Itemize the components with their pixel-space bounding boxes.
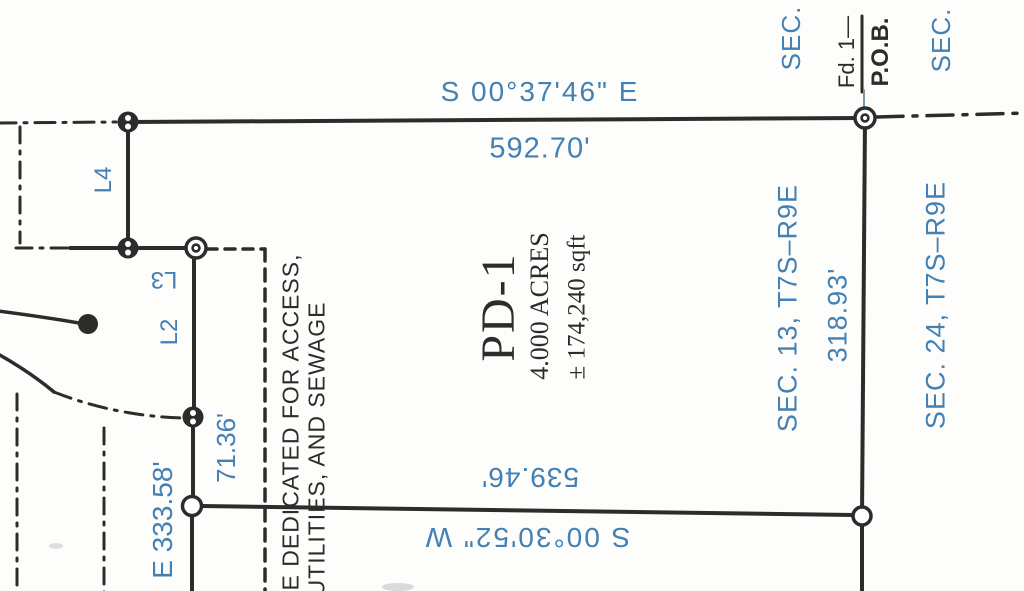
parcel-sqft-label: ± 174,240 sqft	[565, 235, 590, 380]
north-distance-label: 592.70'	[489, 135, 590, 164]
seg-7136-label: 71.36'	[213, 413, 239, 483]
sec-top-left-label: SEC.	[778, 6, 804, 71]
sec-13-label: SEC. 13, T7S–R9E	[775, 184, 802, 432]
sec-top-right-label: SEC.	[928, 8, 954, 73]
section-line-west-ext	[0, 122, 116, 123]
north-boundary-line	[128, 118, 863, 122]
sec-24-label: SEC. 24, T7S–R9E	[923, 181, 950, 429]
monument-west-mid	[183, 407, 204, 428]
parcel-acres-label: 4.000 ACRES	[527, 232, 553, 379]
scan-smudge-2	[49, 543, 63, 549]
north-bearing-label: S 00°37'46" E	[441, 78, 640, 106]
curve-upper	[0, 311, 79, 323]
curve-lower-dashdot	[54, 392, 183, 418]
curve-lower-solid	[0, 354, 54, 392]
found-marker-label: Fd. 1—	[836, 16, 858, 88]
monument-nw	[118, 112, 139, 133]
east-distance-label: 318.93'	[825, 268, 852, 363]
filled-point-curve	[78, 314, 98, 334]
l4-label: L4	[92, 167, 116, 194]
open-point-sw	[183, 497, 202, 516]
l3-label: L3	[151, 267, 178, 291]
survey-plat-canvas: S 00°37'46" E 592.70' 539.46' S 00°30'52…	[0, 0, 1024, 591]
seg-33358-label: E 333.58'	[149, 461, 177, 578]
l2-label: L2	[158, 319, 182, 346]
scan-smudge	[382, 583, 414, 591]
ring-point-l3	[186, 238, 206, 258]
section-line-east-ext	[877, 113, 1024, 117]
pob-point	[855, 108, 875, 128]
south-bearing-label: S 00°30'52" W	[424, 523, 631, 551]
monument-l3-west	[118, 238, 139, 259]
pob-label: P.O.B.	[869, 18, 893, 87]
parcel-name-label: PD-1	[475, 252, 523, 361]
south-distance-label: 539.46'	[481, 463, 579, 491]
easement-note-line1: E DEDICATED FOR ACCESS,	[280, 254, 303, 591]
open-point-se	[853, 507, 871, 525]
easement-note-line2: UTILITIES, AND SEWAGE	[306, 302, 329, 591]
